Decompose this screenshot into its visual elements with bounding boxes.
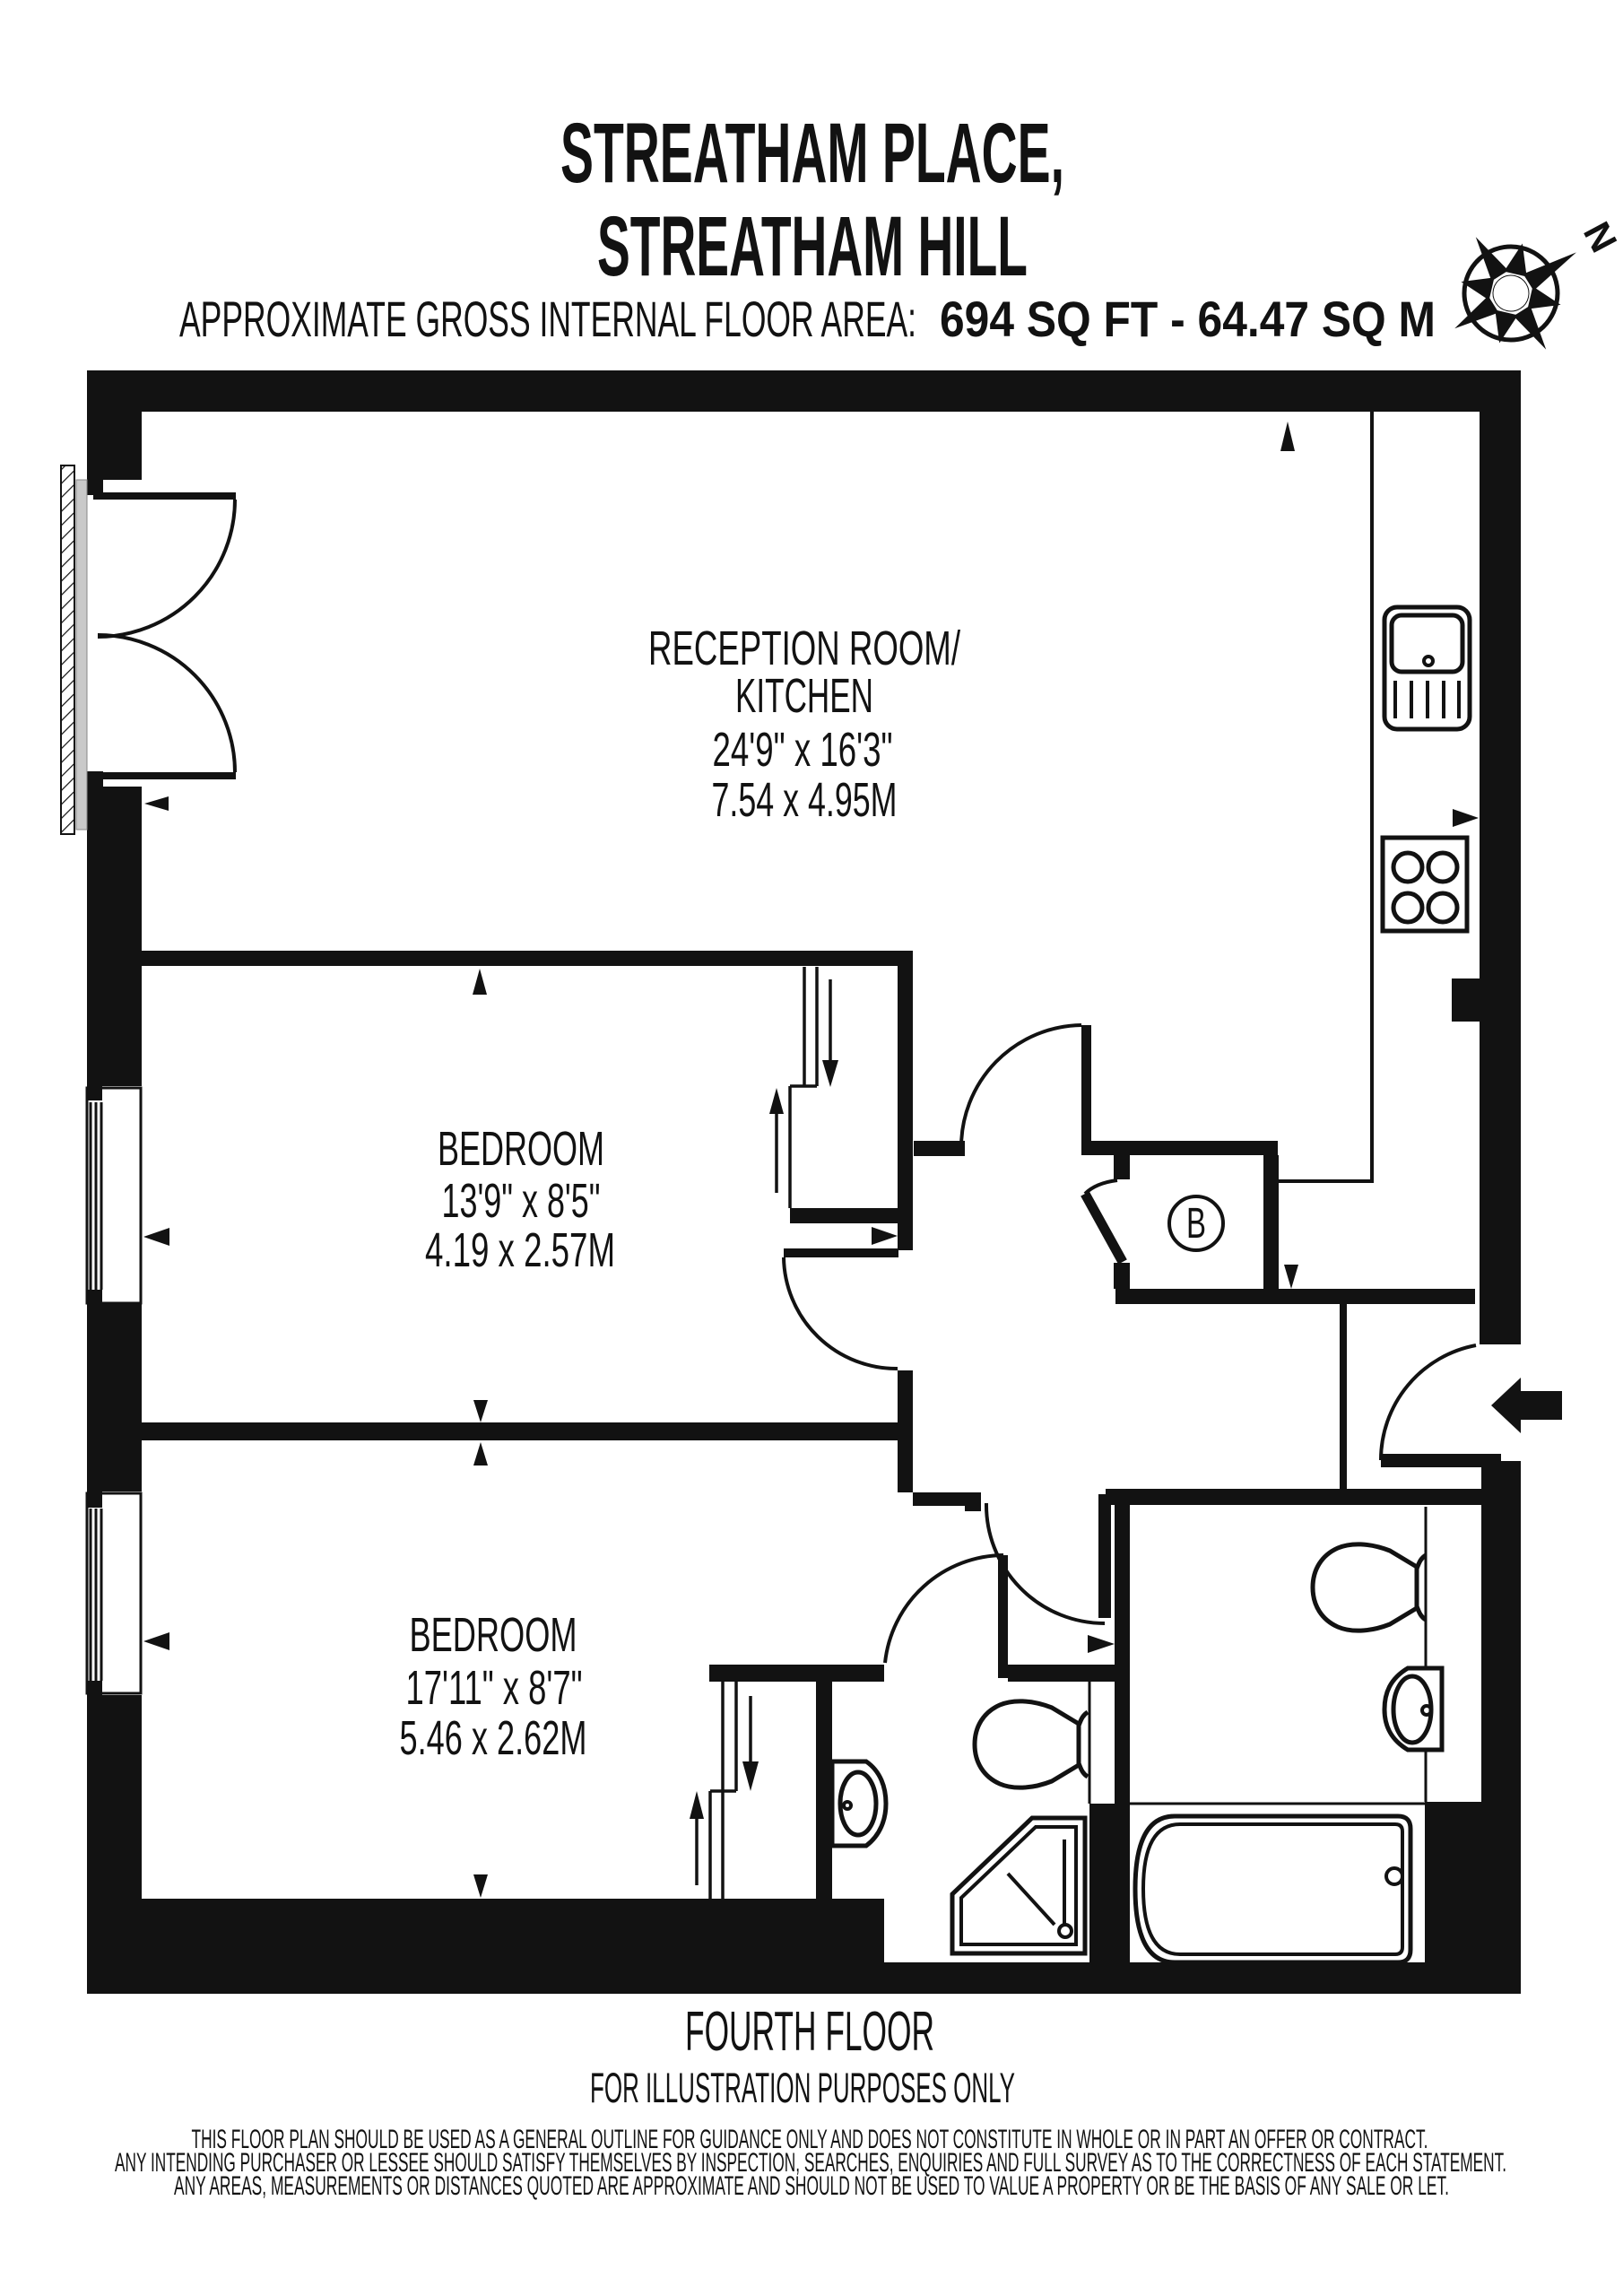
svg-text:RECEPTION ROOM/: RECEPTION ROOM/ [648,622,960,675]
svg-text:STREATHAM PLACE,: STREATHAM PLACE, [560,106,1064,201]
svg-text:ANY AREAS, MEASUREMENTS OR DIS: ANY AREAS, MEASUREMENTS OR DISTANCES QUO… [174,2171,1449,2201]
svg-text:BEDROOM: BEDROOM [410,1608,577,1662]
svg-text:7.54 x 4.95M: 7.54 x 4.95M [712,773,898,827]
svg-text:13'9" x 8'5": 13'9" x 8'5" [442,1174,601,1228]
svg-text:FOURTH FLOOR: FOURTH FLOOR [685,2001,934,2063]
svg-text:24'9" x 16'3": 24'9" x 16'3" [713,723,893,777]
svg-text:STREATHAM HILL: STREATHAM HILL [597,199,1028,294]
svg-text:17'11" x 8'7": 17'11" x 8'7" [406,1661,583,1715]
svg-text:KITCHEN: KITCHEN [735,669,873,723]
svg-text:694 SQ FT - 64.47 SQ M: 694 SQ FT - 64.47 SQ M [940,291,1436,347]
svg-text:5.46 x 2.62M: 5.46 x 2.62M [400,1711,587,1765]
svg-text:APPROXIMATE GROSS INTERNAL FLO: APPROXIMATE GROSS INTERNAL FLOOR AREA: [179,291,916,347]
svg-text:FOR ILLUSTRATION PURPOSES ONLY: FOR ILLUSTRATION PURPOSES ONLY [590,2064,1015,2111]
svg-text:B: B [1186,1200,1206,1248]
svg-text:N: N [1575,215,1623,259]
svg-text:BEDROOM: BEDROOM [438,1122,604,1176]
svg-text:4.19 x 2.57M: 4.19 x 2.57M [425,1223,615,1277]
